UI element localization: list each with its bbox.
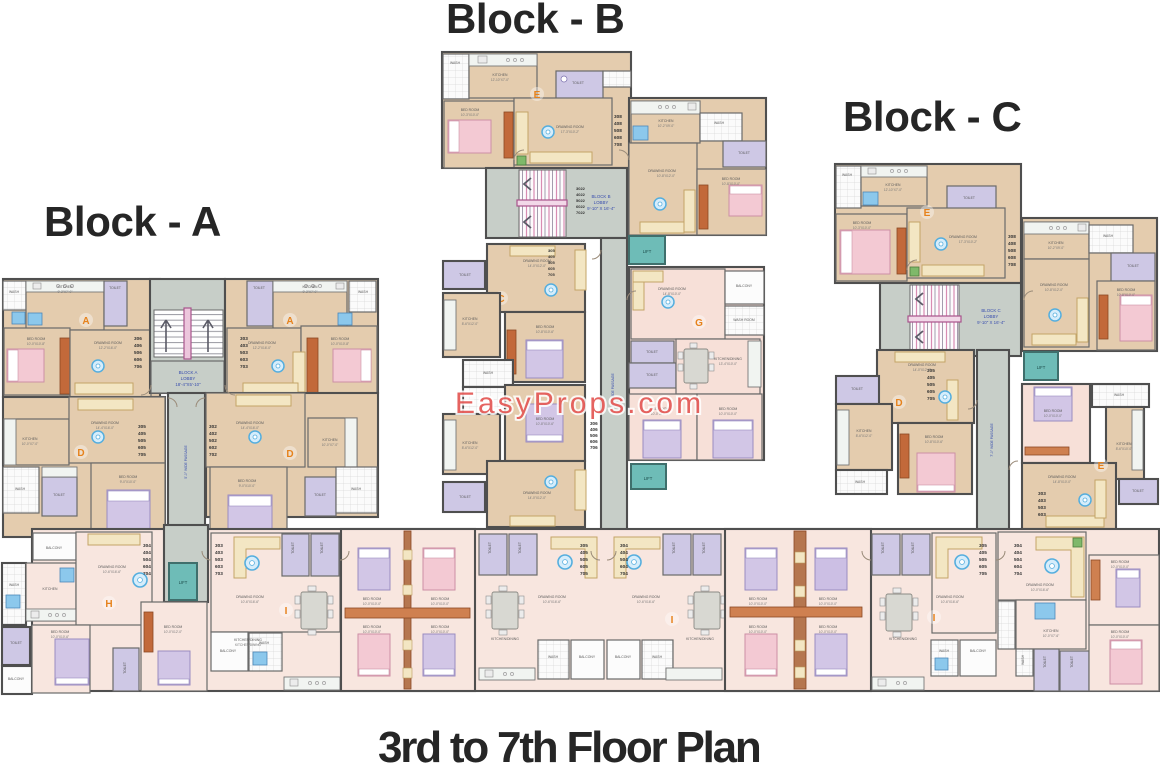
svg-text:LIFT: LIFT <box>643 249 652 254</box>
svg-text:Block - B: Block - B <box>446 0 624 42</box>
svg-text:KITCHEN: KITCHEN <box>1117 442 1132 446</box>
svg-text:TOILET: TOILET <box>291 542 295 554</box>
svg-text:BED ROOM: BED ROOM <box>719 407 738 411</box>
svg-text:WASH: WASH <box>652 655 663 659</box>
svg-text:DRAWING ROOM: DRAWING ROOM <box>556 125 584 129</box>
svg-text:DRAWING ROOM: DRAWING ROOM <box>1026 583 1054 587</box>
svg-text:17'-3"X10'-2": 17'-3"X10'-2" <box>561 130 579 134</box>
svg-text:10'-0"X10'-8": 10'-0"X10'-8" <box>331 342 349 346</box>
svg-text:DRAWING ROOM: DRAWING ROOM <box>632 595 660 599</box>
svg-text:17'-3"X10'-2": 17'-3"X10'-2" <box>959 240 977 244</box>
svg-text:10'-3"X10'-0": 10'-3"X10'-0" <box>461 113 479 117</box>
svg-text:KITCHEN: KITCHEN <box>659 119 674 123</box>
svg-text:10'-0"X10'-0": 10'-0"X10'-0" <box>819 630 837 634</box>
svg-text:I: I <box>671 615 674 626</box>
svg-text:5'-0" WIDE PASSAGE: 5'-0" WIDE PASSAGE <box>184 445 188 479</box>
svg-text:606: 606 <box>134 357 142 362</box>
svg-text:9'-0"X10'-0": 9'-0"X10'-0" <box>120 480 137 484</box>
svg-text:E: E <box>924 208 931 219</box>
svg-text:G: G <box>695 318 703 329</box>
svg-text:305: 305 <box>979 543 987 548</box>
svg-text:TOILET: TOILET <box>488 542 492 554</box>
svg-text:WASH: WASH <box>842 173 853 177</box>
svg-text:303: 303 <box>1038 491 1046 496</box>
svg-text:I: I <box>933 613 936 624</box>
svg-text:705: 705 <box>979 571 987 576</box>
svg-text:TOILET: TOILET <box>109 286 121 290</box>
svg-text:D: D <box>895 398 902 409</box>
svg-text:10'-8"X10'-6": 10'-8"X10'-6" <box>536 330 554 334</box>
svg-text:D: D <box>77 448 84 459</box>
svg-text:305: 305 <box>548 248 555 253</box>
svg-text:DRAWING ROOM: DRAWING ROOM <box>538 595 566 599</box>
svg-text:10'-0"X10'-0": 10'-0"X10'-0" <box>719 412 737 416</box>
svg-text:KITCHEN/DINING: KITCHEN/DINING <box>235 643 262 647</box>
svg-text:10'-6"X16'-6": 10'-6"X16'-6" <box>637 600 655 604</box>
svg-text:506: 506 <box>590 433 598 438</box>
svg-text:KITCHEN: KITCHEN <box>43 587 58 591</box>
svg-text:505: 505 <box>548 260 555 265</box>
svg-text:E: E <box>534 90 541 101</box>
svg-text:TOILET: TOILET <box>459 273 471 277</box>
svg-text:KITCHEN: KITCHEN <box>886 183 901 187</box>
svg-text:505: 505 <box>138 438 146 443</box>
svg-text:308: 308 <box>614 114 622 119</box>
svg-text:14'-8"X10'-0": 14'-8"X10'-0" <box>663 292 681 296</box>
svg-text:BALCONY: BALCONY <box>46 546 63 550</box>
svg-text:10'-6"X16'-6": 10'-6"X16'-6" <box>241 600 259 604</box>
svg-text:A: A <box>286 316 293 327</box>
svg-text:BLOCK C: BLOCK C <box>981 308 1000 313</box>
svg-text:403: 403 <box>215 550 223 555</box>
svg-text:WASH: WASH <box>855 480 866 484</box>
svg-text:704: 704 <box>620 571 628 576</box>
svg-text:TOILET: TOILET <box>459 495 471 499</box>
svg-text:12'-2"X16'-0": 12'-2"X16'-0" <box>99 346 117 350</box>
svg-text:405: 405 <box>138 431 146 436</box>
svg-text:8'-6"X10'-0": 8'-6"X10'-0" <box>1116 447 1133 451</box>
svg-text:708: 708 <box>614 142 622 147</box>
svg-text:608: 608 <box>1008 255 1016 260</box>
svg-text:402: 402 <box>209 431 217 436</box>
svg-text:KITCHEN: KITCHEN <box>58 285 73 289</box>
svg-text:9'-2"X7'-0": 9'-2"X7'-0" <box>303 290 318 294</box>
svg-text:WASH: WASH <box>939 649 950 653</box>
svg-text:3022: 3022 <box>576 186 586 191</box>
svg-text:KITCHEN: KITCHEN <box>23 437 38 441</box>
svg-text:608: 608 <box>614 135 622 140</box>
svg-text:BALCONY: BALCONY <box>579 655 596 659</box>
svg-text:KITCHEN: KITCHEN <box>1044 629 1059 633</box>
svg-text:LIFT: LIFT <box>644 476 653 481</box>
svg-text:WASH ROOM: WASH ROOM <box>733 318 755 322</box>
svg-text:6022: 6022 <box>576 204 586 209</box>
svg-text:10'-8"X10'-0": 10'-8"X10'-0" <box>722 182 740 186</box>
svg-text:8'-6"X12'-0": 8'-6"X12'-0" <box>462 446 479 450</box>
svg-text:10'-0"X10'-0": 10'-0"X10'-0" <box>363 630 381 634</box>
svg-text:WASH: WASH <box>450 61 461 65</box>
svg-text:706: 706 <box>134 364 142 369</box>
svg-text:KITCHEN: KITCHEN <box>1049 241 1064 245</box>
svg-text:7022: 7022 <box>576 210 586 215</box>
svg-text:TOILET: TOILET <box>963 196 975 200</box>
svg-text:BED ROOM: BED ROOM <box>431 625 450 629</box>
svg-text:603: 603 <box>215 564 223 569</box>
svg-text:403: 403 <box>1038 498 1046 503</box>
svg-text:706: 706 <box>590 445 598 450</box>
svg-text:BED ROOM: BED ROOM <box>363 597 382 601</box>
svg-text:E: E <box>1098 461 1105 472</box>
svg-text:9'-10" X 16'-4": 9'-10" X 16'-4" <box>977 320 1005 325</box>
svg-text:404: 404 <box>143 550 151 555</box>
svg-text:10'-2"X9'-0": 10'-2"X9'-0" <box>1048 246 1065 250</box>
svg-text:LOBBY: LOBBY <box>181 376 196 381</box>
svg-text:8'-6"X12'-0": 8'-6"X12'-0" <box>856 434 873 438</box>
svg-text:TOILET: TOILET <box>253 286 265 290</box>
svg-text:504: 504 <box>620 557 628 562</box>
svg-text:10'-0"X10'-0": 10'-0"X10'-0" <box>749 602 767 606</box>
svg-text:BED ROOM: BED ROOM <box>853 221 872 225</box>
svg-text:605: 605 <box>138 445 146 450</box>
svg-text:10'-8"X10'-6": 10'-8"X10'-6" <box>925 440 943 444</box>
svg-text:502: 502 <box>209 438 217 443</box>
svg-text:TOILET: TOILET <box>518 542 522 554</box>
svg-text:10'-0"X10'-0": 10'-0"X10'-0" <box>363 602 381 606</box>
svg-text:BED ROOM: BED ROOM <box>51 630 70 634</box>
svg-text:405: 405 <box>580 550 588 555</box>
svg-text:14'-4"X16'-0": 14'-4"X16'-0" <box>96 426 114 430</box>
svg-text:305: 305 <box>138 424 146 429</box>
svg-text:BED ROOM: BED ROOM <box>164 625 183 629</box>
svg-text:TOILET: TOILET <box>1043 656 1047 668</box>
svg-text:10'-6"X16'-6": 10'-6"X16'-6" <box>543 600 561 604</box>
svg-text:TOILET: TOILET <box>911 542 915 554</box>
svg-text:10'-0"X10'-0": 10'-0"X10'-0" <box>431 630 449 634</box>
svg-text:705: 705 <box>138 452 146 457</box>
svg-text:9'-10" X 16'-4": 9'-10" X 16'-4" <box>587 206 615 211</box>
svg-text:WASH: WASH <box>1114 393 1125 397</box>
svg-text:13'-4"X10'-0": 13'-4"X10'-0" <box>719 362 737 366</box>
svg-text:BALCONY: BALCONY <box>220 649 237 653</box>
svg-text:KITCHEN: KITCHEN <box>493 73 508 77</box>
svg-text:14'-8"X10'-0": 14'-8"X10'-0" <box>1053 480 1071 484</box>
svg-text:406: 406 <box>134 343 142 348</box>
svg-text:7'-0" WIDE PASSAGE: 7'-0" WIDE PASSAGE <box>990 423 994 457</box>
svg-text:10'-6"X16'-6": 10'-6"X16'-6" <box>103 570 121 574</box>
svg-text:DRAWING ROOM: DRAWING ROOM <box>91 421 119 425</box>
svg-text:10'-0"X10'-0": 10'-0"X10'-0" <box>819 602 837 606</box>
svg-text:KITCHEN/DINING: KITCHEN/DINING <box>889 637 917 641</box>
svg-text:304: 304 <box>143 543 151 548</box>
svg-text:604: 604 <box>1014 564 1022 569</box>
svg-text:TOILET: TOILET <box>738 151 750 155</box>
svg-text:TOILET: TOILET <box>672 542 676 554</box>
svg-text:KITCHEN: KITCHEN <box>463 317 478 321</box>
svg-text:LOBBY: LOBBY <box>594 200 609 205</box>
svg-text:302: 302 <box>209 424 217 429</box>
svg-text:BED ROOM: BED ROOM <box>749 597 768 601</box>
svg-text:10'-0"X10'-6": 10'-0"X10'-6" <box>51 635 69 639</box>
svg-text:708: 708 <box>1008 262 1016 267</box>
svg-text:404: 404 <box>1014 550 1022 555</box>
svg-text:LIFT: LIFT <box>179 580 188 585</box>
svg-text:305: 305 <box>580 543 588 548</box>
svg-text:TOILET: TOILET <box>123 662 127 674</box>
svg-text:LIFT: LIFT <box>1037 365 1046 370</box>
svg-text:DRAWING ROOM: DRAWING ROOM <box>98 565 126 569</box>
svg-text:WASH: WASH <box>351 487 362 491</box>
svg-text:10'-0"X10'-0": 10'-0"X10'-0" <box>749 630 767 634</box>
svg-text:TOILET: TOILET <box>320 542 324 554</box>
svg-text:KITCHEN/DINING: KITCHEN/DINING <box>714 357 742 361</box>
svg-text:DRAWING ROOM: DRAWING ROOM <box>949 235 977 239</box>
svg-text:KITCHEN: KITCHEN <box>303 285 318 289</box>
svg-text:9'-2"X7'-0": 9'-2"X7'-0" <box>58 290 73 294</box>
svg-text:I: I <box>285 606 288 617</box>
svg-text:BED ROOM: BED ROOM <box>819 597 838 601</box>
svg-text:14'-4"X16'-0": 14'-4"X16'-0" <box>241 426 259 430</box>
svg-text:DRAWING ROOM: DRAWING ROOM <box>648 169 676 173</box>
svg-text:408: 408 <box>614 121 622 126</box>
svg-text:WASH: WASH <box>548 655 559 659</box>
svg-text:DRAWING ROOM: DRAWING ROOM <box>523 491 551 495</box>
svg-text:503: 503 <box>240 350 248 355</box>
svg-text:WASH: WASH <box>714 121 725 125</box>
svg-text:604: 604 <box>143 564 151 569</box>
svg-text:10'-3"X10'-0": 10'-3"X10'-0" <box>853 226 871 230</box>
svg-text:WASH: WASH <box>9 290 20 294</box>
svg-text:10'-6"X16'-6": 10'-6"X16'-6" <box>941 600 959 604</box>
svg-text:504: 504 <box>1014 557 1022 562</box>
svg-text:10'-0"X7'-0": 10'-0"X7'-0" <box>22 442 39 446</box>
svg-text:10'-8"X10'-6": 10'-8"X10'-6" <box>536 422 554 426</box>
svg-text:TOILET: TOILET <box>314 493 326 497</box>
svg-text:605: 605 <box>979 564 987 569</box>
svg-text:303: 303 <box>240 336 248 341</box>
svg-text:BED ROOM: BED ROOM <box>1111 560 1130 564</box>
svg-text:703: 703 <box>215 571 223 576</box>
svg-text:705: 705 <box>580 571 588 576</box>
svg-text:BED ROOM: BED ROOM <box>238 479 257 483</box>
svg-text:405: 405 <box>979 550 987 555</box>
svg-text:8'-6"X12'-0": 8'-6"X12'-0" <box>462 322 479 326</box>
svg-text:4022: 4022 <box>576 192 586 197</box>
svg-text:14'-0"X12'-0": 14'-0"X12'-0" <box>528 264 546 268</box>
svg-text:304: 304 <box>620 543 628 548</box>
svg-text:505: 505 <box>979 557 987 562</box>
svg-text:BLOCK A: BLOCK A <box>179 370 198 375</box>
svg-text:606: 606 <box>590 439 598 444</box>
svg-text:A: A <box>82 316 89 327</box>
svg-text:BALCONY: BALCONY <box>8 677 25 681</box>
svg-text:403: 403 <box>240 343 248 348</box>
svg-text:DRAWING ROOM: DRAWING ROOM <box>658 287 686 291</box>
svg-text:BED ROOM: BED ROOM <box>749 625 768 629</box>
svg-text:BALCONY: BALCONY <box>615 655 632 659</box>
svg-text:DRAWING ROOM: DRAWING ROOM <box>248 341 276 345</box>
svg-text:603: 603 <box>240 357 248 362</box>
svg-text:WASH: WASH <box>15 487 26 491</box>
svg-text:DRAWING ROOM: DRAWING ROOM <box>908 363 936 367</box>
svg-text:405: 405 <box>548 254 555 259</box>
svg-text:10'-0"X10'-8": 10'-0"X10'-8" <box>27 342 45 346</box>
svg-text:BED ROOM: BED ROOM <box>331 337 350 341</box>
svg-text:WASH: WASH <box>358 290 369 294</box>
svg-text:BALCONY: BALCONY <box>970 649 987 653</box>
svg-text:304: 304 <box>1014 543 1022 548</box>
svg-text:10'-0"X7'-0": 10'-0"X7'-0" <box>322 443 339 447</box>
svg-text:12'-10"X7'-0": 12'-10"X7'-0" <box>884 188 902 192</box>
svg-text:3rd to 7th Floor Plan: 3rd to 7th Floor Plan <box>378 723 760 768</box>
svg-text:TOILET: TOILET <box>10 641 22 645</box>
svg-text:504: 504 <box>143 557 151 562</box>
svg-text:Block - A: Block - A <box>44 198 221 245</box>
svg-text:DRAWING ROOM: DRAWING ROOM <box>523 259 551 263</box>
svg-text:10'-0"X10'-0": 10'-0"X10'-0" <box>431 602 449 606</box>
svg-text:705: 705 <box>927 396 935 401</box>
svg-text:Block - C: Block - C <box>843 93 1021 140</box>
svg-text:10'-0"X10'-0": 10'-0"X10'-0" <box>1044 414 1062 418</box>
svg-text:9'-0"X10'-0": 9'-0"X10'-0" <box>239 484 256 488</box>
svg-text:10'-0"X7'-6": 10'-0"X7'-6" <box>1043 634 1060 638</box>
svg-text:12'-2"X16'-0": 12'-2"X16'-0" <box>253 346 271 350</box>
svg-text:406: 406 <box>590 427 598 432</box>
svg-text:TOILET: TOILET <box>1132 489 1144 493</box>
svg-text:704: 704 <box>143 571 151 576</box>
svg-text:TOILET: TOILET <box>702 542 706 554</box>
svg-text:605: 605 <box>548 266 555 271</box>
svg-text:BED ROOM: BED ROOM <box>1044 409 1063 413</box>
svg-text:10'-0"X10'-0": 10'-0"X10'-0" <box>1111 635 1129 639</box>
svg-text:605: 605 <box>580 564 588 569</box>
svg-text:TOILET: TOILET <box>851 387 863 391</box>
svg-text:14'-0"X12'-0": 14'-0"X12'-0" <box>913 368 931 372</box>
svg-text:505: 505 <box>580 557 588 562</box>
svg-text:506: 506 <box>134 350 142 355</box>
svg-text:303: 303 <box>215 543 223 548</box>
svg-text:TOILET: TOILET <box>1127 264 1139 268</box>
svg-text:KITCHEN: KITCHEN <box>323 438 338 442</box>
svg-text:BED ROOM: BED ROOM <box>1117 288 1136 292</box>
svg-text:704: 704 <box>1014 571 1022 576</box>
svg-text:KITCHEN/DINING: KITCHEN/DINING <box>686 637 714 641</box>
svg-text:18'-4"X5'-10": 18'-4"X5'-10" <box>175 382 201 387</box>
svg-text:TOILET: TOILET <box>1070 656 1074 668</box>
svg-text:DRAWING ROOM: DRAWING ROOM <box>94 341 122 345</box>
svg-text:602: 602 <box>209 445 217 450</box>
svg-text:404: 404 <box>620 550 628 555</box>
svg-text:604: 604 <box>620 564 628 569</box>
svg-text:10'-8"X12'-0": 10'-8"X12'-0" <box>1045 288 1063 292</box>
svg-text:BED ROOM: BED ROOM <box>536 325 555 329</box>
svg-text:KITCHEN/DINING: KITCHEN/DINING <box>491 637 519 641</box>
svg-text:605: 605 <box>927 389 935 394</box>
svg-text:TOILET: TOILET <box>881 542 885 554</box>
svg-text:BALCONY: BALCONY <box>736 284 753 288</box>
svg-text:WASH: WASH <box>9 583 20 587</box>
svg-text:306: 306 <box>590 421 598 426</box>
svg-text:603: 603 <box>1038 512 1046 517</box>
svg-text:10'-2"X9'-0": 10'-2"X9'-0" <box>658 124 675 128</box>
svg-text:DRAWING ROOM: DRAWING ROOM <box>236 421 264 425</box>
svg-text:BED ROOM: BED ROOM <box>119 475 138 479</box>
svg-text:306: 306 <box>134 336 142 341</box>
svg-text:BED ROOM: BED ROOM <box>461 108 480 112</box>
svg-text:BED ROOM: BED ROOM <box>819 625 838 629</box>
svg-text:503: 503 <box>1038 505 1046 510</box>
svg-text:12'-10"X7'-0": 12'-10"X7'-0" <box>491 78 509 82</box>
svg-text:DRAWING ROOM: DRAWING ROOM <box>1048 475 1076 479</box>
svg-text:DRAWING ROOM: DRAWING ROOM <box>236 595 264 599</box>
svg-text:508: 508 <box>1008 248 1016 253</box>
svg-text:BED ROOM: BED ROOM <box>722 177 741 181</box>
svg-text:703: 703 <box>240 364 248 369</box>
svg-text:KITCHEN: KITCHEN <box>463 441 478 445</box>
svg-text:10'-0"X12'-0": 10'-0"X12'-0" <box>164 630 182 634</box>
svg-text:TOILET: TOILET <box>646 350 658 354</box>
svg-text:TOILET: TOILET <box>646 373 658 377</box>
svg-text:DRAWING ROOM: DRAWING ROOM <box>936 595 964 599</box>
svg-text:10'-8"X12'-0": 10'-8"X12'-0" <box>657 174 675 178</box>
svg-text:BED ROOM: BED ROOM <box>363 625 382 629</box>
svg-text:505: 505 <box>927 382 935 387</box>
svg-text:WASH: WASH <box>483 371 494 375</box>
svg-text:BED ROOM: BED ROOM <box>925 435 944 439</box>
svg-text:BLOCK B: BLOCK B <box>591 194 610 199</box>
svg-text:BED ROOM: BED ROOM <box>431 597 450 601</box>
svg-text:TOILET: TOILET <box>572 81 584 85</box>
svg-text:14'-0"X12'-0": 14'-0"X12'-0" <box>528 496 546 500</box>
svg-text:308: 308 <box>1008 234 1016 239</box>
svg-text:BED ROOM: BED ROOM <box>27 337 46 341</box>
svg-text:KITCHEN: KITCHEN <box>857 429 872 433</box>
svg-text:503: 503 <box>215 557 223 562</box>
svg-text:EasyProps.com: EasyProps.com <box>455 387 704 420</box>
svg-text:H: H <box>105 599 112 610</box>
svg-text:5022: 5022 <box>576 198 586 203</box>
svg-text:508: 508 <box>614 128 622 133</box>
svg-text:BED ROOM: BED ROOM <box>1111 630 1130 634</box>
svg-text:WASH: WASH <box>1021 654 1025 665</box>
svg-text:702: 702 <box>209 452 217 457</box>
svg-text:DRAWING ROOM: DRAWING ROOM <box>1040 283 1068 287</box>
svg-text:408: 408 <box>1008 241 1016 246</box>
svg-text:705: 705 <box>548 272 555 277</box>
svg-text:D: D <box>286 449 293 460</box>
svg-text:10'-0"X10'-0": 10'-0"X10'-0" <box>1111 565 1129 569</box>
svg-text:10'-8"X10'-0": 10'-8"X10'-0" <box>1117 293 1135 297</box>
svg-text:405: 405 <box>927 375 935 380</box>
svg-text:LOBBY: LOBBY <box>984 314 999 319</box>
svg-text:10'-0"X16'-6": 10'-0"X16'-6" <box>1031 588 1049 592</box>
svg-text:WASH: WASH <box>1103 234 1114 238</box>
svg-text:TOILET: TOILET <box>53 493 65 497</box>
